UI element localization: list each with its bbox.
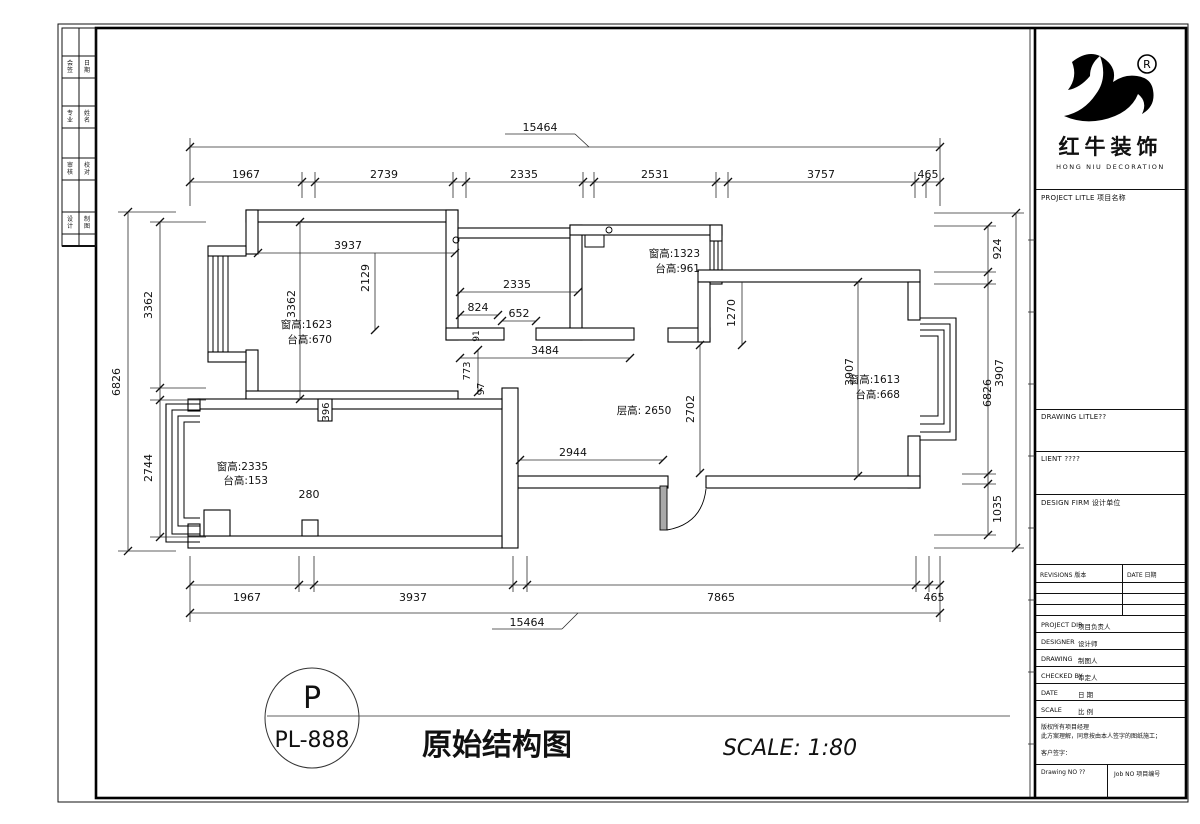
wall bbox=[246, 210, 458, 222]
design-firm-section: DESIGN FIRM 设计单位 bbox=[1036, 495, 1185, 565]
plan-path bbox=[166, 404, 200, 542]
plan-label: 专 bbox=[67, 109, 73, 117]
drawing-label: DRAWING bbox=[1041, 655, 1073, 663]
plan-label: 计 bbox=[67, 222, 73, 230]
wall bbox=[246, 210, 258, 254]
dim-line bbox=[575, 134, 589, 147]
project-dir-row: PROJECT DIR 项目负责人 bbox=[1036, 616, 1185, 633]
plan-label: 原始结构图 bbox=[422, 728, 572, 763]
plan-label: 1035 bbox=[991, 495, 1004, 523]
note-line-3: 客户签字： bbox=[1041, 749, 1181, 758]
plan-label: 3362 bbox=[285, 290, 298, 318]
drawing-title-section: DRAWING LITLE?? bbox=[1036, 410, 1185, 452]
wall bbox=[908, 282, 920, 320]
project-dir-label: PROJECT DIR bbox=[1041, 621, 1083, 629]
plan-label: 2739 bbox=[370, 168, 398, 181]
plan-label: 台高:961 bbox=[655, 262, 700, 275]
title-block: 红牛装饰 HONG NIU DECORATION PROJECT LITLE 项… bbox=[1036, 29, 1185, 797]
wall bbox=[302, 520, 318, 536]
date-cn: 日 期 bbox=[1078, 689, 1093, 699]
plan-label: 2702 bbox=[684, 395, 697, 423]
plan-label: 7865 bbox=[707, 591, 735, 604]
plan-label: 3484 bbox=[531, 344, 559, 357]
plan-label: PL-888 bbox=[274, 728, 349, 753]
plan-label: 窗高:1613 bbox=[849, 373, 900, 386]
note-line-1: 版权所有项目经理 bbox=[1041, 723, 1181, 732]
plan-label: 业 bbox=[67, 116, 73, 124]
plan-label: 15464 bbox=[510, 616, 545, 629]
plan-label: 3937 bbox=[399, 591, 427, 604]
drawing-row: DRAWING 制图人 bbox=[1036, 650, 1185, 667]
brand-name-en: HONG NIU DECORATION bbox=[1036, 163, 1185, 171]
plan-path bbox=[585, 235, 604, 247]
wall bbox=[502, 388, 518, 548]
plan-label: 1270 bbox=[725, 299, 738, 327]
plan-label: 窗高:2335 bbox=[217, 460, 268, 473]
plan-label: 日 bbox=[84, 60, 90, 67]
plan-label: 层高: 2650 bbox=[617, 404, 672, 417]
drawing-title-label: DRAWING LITLE?? bbox=[1036, 410, 1185, 421]
plan-label: 图 bbox=[84, 223, 90, 230]
revisions-label: REVISIONS 版本 bbox=[1036, 565, 1122, 583]
scale-label: SCALE bbox=[1041, 706, 1062, 714]
plan-label: 2335 bbox=[503, 278, 531, 291]
dim-line bbox=[562, 613, 578, 629]
client-section: LIENT ???? bbox=[1036, 452, 1185, 495]
wall bbox=[208, 352, 246, 362]
note-line-2: 此方案理解，同意按由本人签字的图纸施工； bbox=[1041, 732, 1181, 741]
logo-section: 红牛装饰 HONG NIU DECORATION bbox=[1036, 29, 1185, 190]
plan-label: 2129 bbox=[359, 264, 372, 292]
wall bbox=[446, 210, 458, 340]
plan-label: 3757 bbox=[807, 168, 835, 181]
drawing-no-cell: Drawing NO ?? bbox=[1036, 765, 1108, 798]
floor-plan: 1546419672739233525313757465196739377865… bbox=[67, 59, 1035, 768]
plan-label: 15464 bbox=[523, 121, 558, 134]
revisions-date-label: DATE 日期 bbox=[1123, 565, 1185, 583]
designer-cn: 设计师 bbox=[1078, 638, 1098, 648]
job-no-cell: Job NO 项目编号 bbox=[1109, 765, 1185, 798]
plan-path bbox=[667, 489, 706, 530]
drawing-cn: 制图人 bbox=[1078, 655, 1098, 665]
job-no-label: Job NO 项目编号 bbox=[1114, 771, 1160, 778]
wall bbox=[698, 270, 920, 282]
plan-label: 97 bbox=[476, 383, 487, 396]
wall bbox=[204, 510, 230, 536]
plan-label: 台高:668 bbox=[855, 388, 900, 401]
brand-name-cn: 红牛装饰 bbox=[1036, 131, 1185, 161]
plan-label: 窗高:1623 bbox=[281, 318, 332, 331]
checked-by-label: CHECKED BY bbox=[1041, 672, 1083, 680]
plan-label: 核 bbox=[67, 168, 73, 176]
designer-row: DESIGNER 设计师 bbox=[1036, 633, 1185, 650]
project-title-section: PROJECT LITLE 项目名称 bbox=[1036, 190, 1185, 410]
revision-row bbox=[1036, 594, 1185, 605]
plan-label: 2335 bbox=[510, 168, 538, 181]
project-dir-cn: 项目负责人 bbox=[1078, 621, 1111, 631]
plan-label: 设 bbox=[67, 215, 73, 223]
plan-label: 924 bbox=[991, 239, 1004, 260]
note-section: 版权所有项目经理 此方案理解，同意按由本人签字的图纸施工； 客户签字： bbox=[1036, 718, 1185, 765]
plan-label: 3907 bbox=[993, 359, 1006, 387]
plan-label: 会 bbox=[67, 59, 73, 67]
blueprint-page: R 15464196727392335253137574651967393778… bbox=[0, 0, 1200, 824]
plan-label: 2944 bbox=[559, 446, 587, 459]
project-title-label: PROJECT LITLE 项目名称 bbox=[1036, 190, 1185, 203]
plan-label: 280 bbox=[299, 488, 320, 501]
scale-row: SCALE 比 例 bbox=[1036, 701, 1185, 718]
checked-by-cn: 审定人 bbox=[1078, 672, 1098, 682]
plan-path bbox=[184, 422, 200, 518]
door-leaf bbox=[660, 486, 667, 530]
wall bbox=[710, 225, 722, 241]
wall bbox=[570, 225, 582, 340]
plan-path bbox=[178, 416, 200, 526]
plan-label: 824 bbox=[468, 301, 489, 314]
wall bbox=[518, 476, 668, 488]
plan-label: 制 bbox=[84, 215, 90, 223]
plan-label: 1967 bbox=[232, 168, 260, 181]
plan-label: 窗高:1323 bbox=[649, 247, 700, 260]
plan-label: 1967 bbox=[233, 591, 261, 604]
plan-label: 396 bbox=[321, 402, 332, 421]
plan-label: 465 bbox=[924, 591, 945, 604]
plan-label: 校 bbox=[84, 161, 90, 169]
wall bbox=[198, 399, 502, 409]
plan-label: 2744 bbox=[142, 454, 155, 482]
plan-label: 审 bbox=[67, 161, 73, 169]
designer-label: DESIGNER bbox=[1041, 638, 1075, 646]
design-firm-label: DESIGN FIRM 设计单位 bbox=[1036, 495, 1185, 508]
plan-label: 3937 bbox=[334, 239, 362, 252]
plan-label: 姓 bbox=[84, 109, 90, 117]
revision-row bbox=[1036, 605, 1185, 616]
wall bbox=[698, 282, 710, 342]
plan-label: 对 bbox=[84, 168, 90, 176]
revision-row bbox=[1036, 583, 1185, 594]
plan-label: 期 bbox=[84, 66, 90, 74]
plan-label: 签 bbox=[67, 66, 73, 74]
plan-path bbox=[920, 330, 944, 424]
wall bbox=[188, 399, 200, 411]
wall bbox=[188, 536, 502, 548]
plan-label: 465 bbox=[918, 168, 939, 181]
drawing-canvas: R 15464196727392335253137574651967393778… bbox=[0, 0, 1200, 824]
wall bbox=[458, 228, 580, 238]
plan-label: 773 bbox=[462, 361, 473, 380]
plan-label: 91 bbox=[472, 330, 482, 341]
wall bbox=[536, 328, 634, 340]
wall bbox=[208, 246, 246, 256]
drawing-no-label: Drawing NO ?? bbox=[1041, 769, 1085, 776]
scale-cn: 比 例 bbox=[1078, 706, 1093, 716]
plan-path bbox=[920, 336, 938, 416]
date-row: DATE 日 期 bbox=[1036, 684, 1185, 701]
wall bbox=[570, 225, 722, 235]
checked-by-row: CHECKED BY 审定人 bbox=[1036, 667, 1185, 684]
plan-label: 2531 bbox=[641, 168, 669, 181]
plan-label: 名 bbox=[84, 116, 90, 124]
plan-path bbox=[172, 410, 200, 534]
date-label: DATE bbox=[1041, 689, 1058, 697]
plan-label: P bbox=[303, 681, 321, 716]
plan-label: 台高:670 bbox=[287, 333, 332, 346]
plan-label: 6826 bbox=[110, 368, 123, 396]
plan-label: 652 bbox=[509, 307, 530, 320]
wall bbox=[706, 476, 920, 488]
plan-label: 6826 bbox=[981, 379, 994, 407]
plan-label: 3362 bbox=[142, 291, 155, 319]
revisions-header: REVISIONS 版本 DATE 日期 bbox=[1036, 565, 1185, 583]
client-label: LIENT ???? bbox=[1036, 452, 1185, 463]
plan-label: SCALE: 1:80 bbox=[723, 736, 857, 761]
plan-label: 台高:153 bbox=[223, 474, 268, 487]
